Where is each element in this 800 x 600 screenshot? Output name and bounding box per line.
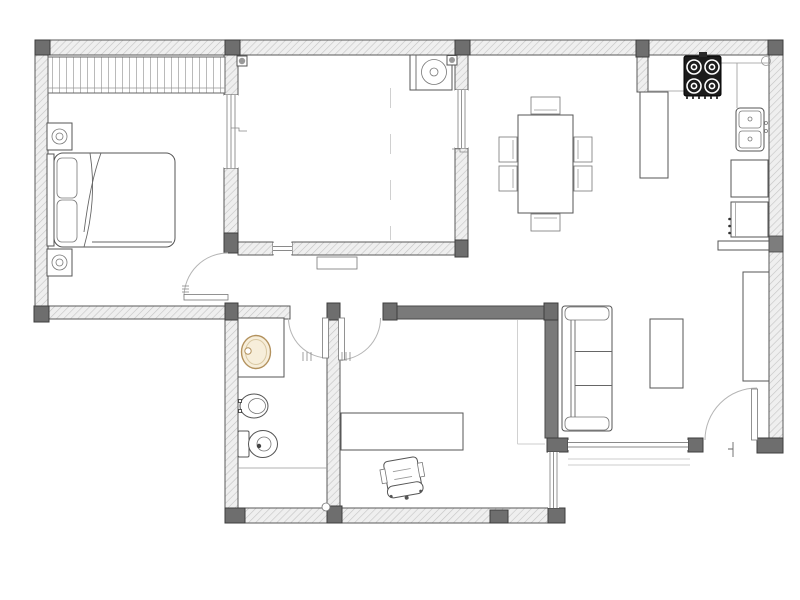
post bbox=[757, 438, 783, 453]
armrest bbox=[565, 417, 609, 430]
wall-segment bbox=[292, 242, 455, 255]
hallway bbox=[317, 257, 357, 269]
wall-segment bbox=[238, 242, 273, 255]
tap-icon bbox=[239, 410, 242, 413]
post bbox=[490, 510, 508, 523]
wall-segment bbox=[224, 168, 238, 233]
cistern bbox=[238, 431, 249, 457]
doormat bbox=[317, 257, 357, 269]
drain-icon bbox=[748, 137, 752, 141]
post bbox=[455, 240, 468, 257]
armrest bbox=[565, 307, 609, 320]
drain-icon bbox=[748, 117, 752, 121]
post bbox=[383, 303, 397, 320]
fixture-icon bbox=[239, 58, 245, 64]
floor-plan-page bbox=[0, 0, 800, 600]
post bbox=[547, 438, 568, 452]
headboard bbox=[47, 154, 54, 246]
double-bed bbox=[47, 153, 175, 247]
tv-cabinet bbox=[743, 272, 769, 381]
pillow bbox=[57, 200, 77, 242]
post bbox=[548, 508, 565, 523]
floor-plan-canvas bbox=[0, 0, 800, 600]
base-cabinet bbox=[731, 160, 768, 197]
cooktop bbox=[684, 52, 721, 99]
double-sink bbox=[736, 108, 768, 151]
wall-segment bbox=[225, 320, 238, 508]
hall-dark-wall bbox=[383, 306, 558, 319]
post bbox=[225, 40, 240, 55]
sofa bbox=[562, 306, 612, 431]
nightstand bbox=[47, 249, 72, 276]
post bbox=[768, 40, 783, 55]
tap-icon bbox=[245, 348, 251, 354]
fixture-icon bbox=[449, 57, 455, 63]
pipe-fixture bbox=[322, 503, 330, 511]
post bbox=[544, 303, 558, 320]
hinge-icon bbox=[728, 225, 731, 228]
washing-machine bbox=[410, 55, 452, 90]
post bbox=[34, 306, 49, 322]
dining-table bbox=[518, 115, 573, 213]
wall-segment bbox=[455, 148, 468, 240]
wall-segment bbox=[225, 508, 565, 523]
pillow bbox=[57, 158, 77, 198]
study-east-window bbox=[548, 452, 559, 508]
post bbox=[327, 303, 340, 320]
tap-icon bbox=[765, 122, 768, 125]
cooktop-knob bbox=[699, 52, 707, 57]
hinge-icon bbox=[728, 232, 731, 235]
desk bbox=[341, 413, 463, 450]
wall-segment bbox=[35, 55, 48, 307]
study-living-wall bbox=[545, 319, 558, 438]
wall-segment bbox=[327, 320, 340, 508]
dining-chair bbox=[499, 166, 517, 191]
door-leaf bbox=[184, 295, 228, 301]
wall-segment bbox=[50, 40, 225, 55]
dining-chair bbox=[531, 97, 560, 114]
wall-segment bbox=[649, 40, 768, 55]
living-south-window bbox=[568, 440, 688, 450]
wall-segment bbox=[49, 306, 225, 319]
post bbox=[224, 233, 238, 253]
toilet bbox=[238, 431, 278, 458]
dining-chair bbox=[499, 137, 517, 162]
wall-recess bbox=[769, 236, 783, 252]
dining-chair bbox=[531, 214, 560, 231]
door-leaf bbox=[339, 318, 345, 360]
base-cabinet bbox=[728, 202, 768, 237]
kitchen-stub-wall bbox=[637, 57, 648, 92]
tap-icon bbox=[765, 130, 768, 133]
post bbox=[225, 508, 245, 523]
post bbox=[225, 303, 238, 320]
nightstand bbox=[47, 123, 72, 150]
peninsula-counter bbox=[718, 241, 769, 250]
utility-pass-through bbox=[273, 243, 292, 254]
wall-segment bbox=[238, 306, 290, 319]
post bbox=[455, 40, 470, 55]
drain-icon bbox=[257, 444, 261, 448]
coffee-table bbox=[650, 319, 683, 388]
post bbox=[636, 40, 649, 57]
door-leaf bbox=[323, 318, 329, 358]
ceiling-fixture bbox=[237, 56, 247, 66]
ceiling-fixture bbox=[447, 56, 457, 66]
dining-chair bbox=[574, 137, 592, 162]
wall-segment bbox=[224, 55, 238, 95]
door-leaf bbox=[752, 389, 758, 440]
post bbox=[35, 40, 50, 55]
tap-icon bbox=[239, 400, 242, 403]
post bbox=[688, 438, 703, 452]
hinge-icon bbox=[728, 218, 731, 221]
tall-cabinet bbox=[640, 92, 668, 178]
dining-chair bbox=[574, 166, 592, 191]
wall-segment bbox=[240, 40, 455, 55]
wall-segment bbox=[470, 40, 636, 55]
